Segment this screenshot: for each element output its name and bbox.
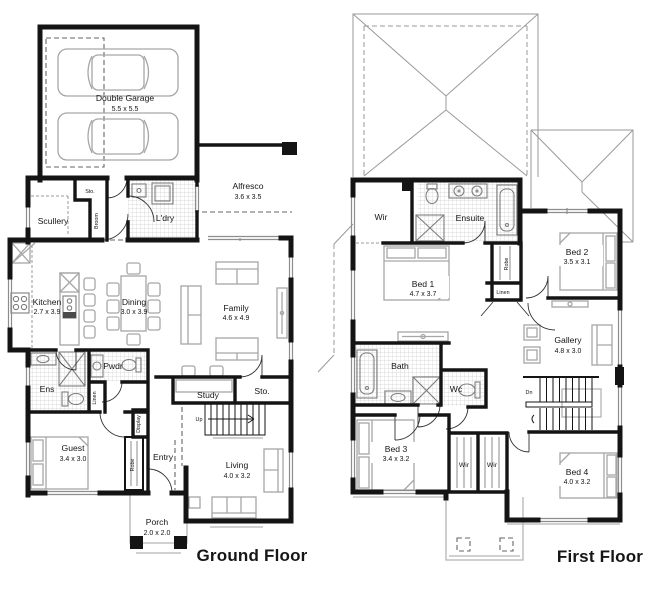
dims-porch: 2.0 x 2.0 [144,530,171,537]
kitchen-island [60,273,79,345]
label-stairs-dn: Dn [526,390,533,396]
dims-garage: 5.5 x 5.5 [112,106,139,113]
dims-kitchen: 2.7 x 3.9 [34,309,61,316]
label-laundry: L'dry [156,213,175,223]
dims-living: 4.0 x 3.2 [224,473,251,480]
label-sto-top: Sto. [85,189,95,195]
dims-bed3: 3.4 x 3.2 [383,456,410,463]
label-kitchen: Kitchen [33,297,62,307]
stairs-icon [524,377,601,430]
bath-tile-floor [355,345,440,404]
label-bath: Bath [391,361,409,371]
dims-family: 4.6 x 4.9 [223,315,250,322]
sofa-icon [592,325,612,365]
alfresco-post [282,142,297,155]
label-wir-master: Wir [375,212,388,222]
label-wc: Wc [450,384,463,394]
ensuite-tile-floor [418,182,519,241]
label-bed2: Bed 2 [566,247,589,257]
label-wir-a: Wir [459,462,470,469]
label-living: Living [226,460,249,470]
car-icon [58,49,178,96]
label-pwdr: Pwdr [103,361,123,371]
dresser-icon [398,332,448,341]
corner-pantry [10,243,35,265]
dims-bed2: 3.5 x 3.1 [564,259,591,266]
label-bed1: Bed 1 [412,279,435,289]
label-display: Display [136,415,142,433]
label-robe-f: Robe [504,258,510,271]
label-dining: Dining [122,297,147,307]
label-linen-g: Linen [92,391,98,404]
label-family: Family [223,303,249,313]
label-guest: Guest [62,443,86,453]
label-scullery: Scullery [38,216,69,226]
label-entry: Entry [153,452,174,462]
dims-gallery: 4.8 x 3.0 [555,348,582,355]
label-ensuite: Ensuite [456,213,485,223]
first-floor-plan: Wir Ensuite Bed 1 4.7 x 3.7 Bed 2 3.5 x … [318,14,643,566]
ground-floor-plan: Double Garage 5.5 x 5.5 Alfresco 3.6 x 3… [9,27,308,565]
label-bed3: Bed 3 [385,444,408,454]
label-sto: Sto. [254,386,269,396]
label-stairs-up: Up [196,417,203,423]
label-gallery: Gallery [554,335,582,345]
dims-bed4: 4.0 x 3.2 [564,479,591,486]
study-desk [176,366,232,392]
console-icon [552,301,588,307]
island-stools [84,278,95,338]
label-robe-g: Robe [130,459,136,472]
dims-bed1: 4.7 x 3.7 [410,291,437,298]
tv-unit-icon [277,288,287,338]
stairs-icon [205,403,265,438]
dims-guest: 3.4 x 3.0 [60,456,87,463]
label-porch: Porch [146,517,169,527]
wall-post [615,367,624,385]
label-garage: Double Garage [96,93,155,103]
ground-floor-title: Ground Floor [197,546,308,565]
label-broom: Broom [94,213,100,229]
label-bed4: Bed 4 [566,467,589,477]
label-linen-f: Linen [496,290,509,296]
dims-alfresco: 3.6 x 3.5 [235,194,262,201]
first-floor-title: First Floor [557,547,643,566]
car-icon [58,113,178,160]
cooktop-icon [11,293,29,313]
floor-plan-canvas: Double Garage 5.5 x 5.5 Alfresco 3.6 x 3… [0,0,663,600]
gallery-chairs [524,325,540,363]
label-wir-b: Wir [487,462,498,469]
label-study: Study [197,390,220,400]
label-ens: Ens [40,384,55,394]
label-alfresco: Alfresco [232,181,263,191]
dims-dining: 3.0 x 3.9 [121,309,148,316]
floorplan-svg: Double Garage 5.5 x 5.5 Alfresco 3.6 x 3… [0,0,663,600]
